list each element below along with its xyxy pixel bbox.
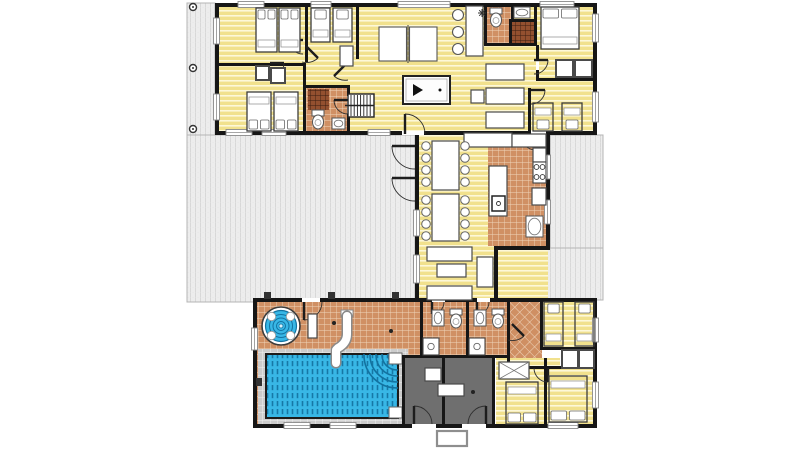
dining-chair (422, 166, 431, 175)
jacuzzi-seat (267, 331, 275, 339)
table-tennis-table (379, 25, 437, 63)
pillow (508, 413, 521, 422)
closet (562, 350, 578, 368)
sink-basin (434, 312, 442, 324)
billiard-table (403, 76, 450, 104)
shower-tray (423, 338, 439, 355)
wall (305, 3, 308, 62)
pillow (562, 9, 578, 18)
floor-plan-svg (0, 0, 800, 449)
bathroom-sink (432, 310, 444, 326)
bed-fold (335, 30, 350, 37)
bed-fold (535, 108, 551, 115)
bed-fold (258, 40, 275, 47)
wall (540, 302, 543, 350)
pillow (291, 10, 298, 19)
post-marker (392, 292, 399, 299)
island-sink (492, 196, 505, 211)
pillow (281, 10, 288, 19)
bed-fold (313, 30, 328, 37)
pillow (566, 120, 578, 129)
pillow (276, 120, 285, 129)
bed-fold (281, 40, 298, 47)
hallway-floor (510, 300, 542, 366)
sink-basin (476, 312, 484, 324)
toilet (450, 309, 462, 328)
closet (575, 60, 592, 77)
table-half (410, 27, 438, 61)
wardrobe (340, 46, 353, 66)
closet (562, 350, 578, 368)
ceiling-fan-symbol (478, 9, 486, 17)
pool-bench (308, 314, 317, 338)
pillow (249, 120, 258, 129)
kitchen-counter (533, 148, 546, 162)
pillow (288, 120, 297, 129)
wall (402, 355, 510, 358)
bed-fold (276, 97, 296, 104)
dining-table (432, 194, 459, 241)
bar-stool (453, 44, 464, 55)
jacuzzi-seat (286, 312, 294, 320)
sofa (486, 64, 524, 80)
sofa (427, 247, 472, 261)
bed-single (311, 8, 330, 42)
dining-chair (461, 208, 470, 217)
wardrobe (340, 46, 353, 66)
wall (534, 3, 537, 45)
island-sink (492, 196, 505, 211)
pillow (548, 304, 559, 313)
kitchen-counter (533, 148, 546, 162)
bar-stool (453, 10, 464, 21)
shelf (425, 368, 441, 381)
sofa (486, 112, 524, 128)
wall (509, 19, 512, 45)
coffee-table (437, 264, 466, 277)
sofa (427, 247, 472, 261)
staircase (345, 94, 374, 117)
dining-chair (461, 142, 470, 151)
closet (556, 60, 573, 77)
bathroom-sink (514, 7, 530, 18)
dining-chair (461, 196, 470, 205)
toilet-bowl (491, 13, 502, 27)
dining-chair (461, 220, 470, 229)
pillow (337, 10, 348, 19)
hall-bathroom-shower (308, 89, 329, 110)
kitchen-counter (512, 134, 546, 147)
closet (271, 68, 285, 83)
bed-fold (546, 334, 561, 341)
wall-opening (302, 298, 320, 302)
wall (509, 19, 534, 22)
dining-chair (461, 178, 470, 187)
billiard-rail (403, 76, 450, 104)
shelf (438, 384, 464, 396)
dining-chair (422, 196, 431, 205)
table-half (379, 27, 407, 61)
dining-chair (422, 232, 431, 241)
pillow (524, 413, 537, 422)
dining-chair (461, 232, 470, 241)
closet (579, 350, 594, 368)
dining-chair (422, 220, 431, 229)
sideboard (464, 133, 512, 147)
fridge (532, 188, 546, 205)
bed-fold (249, 97, 269, 104)
armchair (477, 257, 493, 287)
jacuzzi-seat (267, 312, 275, 320)
deck-post-center (192, 6, 194, 8)
shelf (425, 368, 441, 381)
bar-stool (453, 27, 464, 38)
wardrobe (499, 362, 529, 379)
post-marker (256, 378, 262, 386)
wall (507, 302, 510, 370)
dining-chair (422, 208, 431, 217)
post-marker (264, 292, 271, 299)
deck-post-center (192, 128, 194, 130)
deck (187, 135, 415, 302)
bed-single (274, 92, 298, 131)
jacuzzi-center (279, 324, 283, 328)
dining-chair (422, 142, 431, 151)
sofa (486, 112, 524, 128)
closet (575, 60, 592, 77)
closet (256, 66, 269, 80)
side-table (471, 90, 484, 103)
wall (536, 45, 539, 60)
bathroom-sink (474, 310, 486, 326)
sofa (486, 88, 524, 104)
pillow (261, 120, 270, 129)
closet (556, 60, 573, 77)
floor-drain (332, 321, 336, 325)
pillow (537, 120, 549, 129)
floor-drain (389, 329, 393, 333)
wall-opening (462, 424, 486, 428)
deck-post-center (192, 67, 194, 69)
pool-step (389, 407, 402, 418)
bed-fold (551, 381, 585, 388)
shower-tray (469, 338, 485, 355)
deck (550, 135, 603, 248)
wall (536, 78, 596, 81)
bed-fold (543, 37, 577, 44)
toilet-bowl (451, 314, 462, 328)
toilet (492, 309, 504, 328)
pillow (551, 411, 567, 420)
floor-plan-image (0, 0, 800, 449)
bathroom-sink (332, 118, 345, 129)
bar-stool (453, 44, 464, 55)
sink-basin (528, 218, 541, 235)
wall (356, 3, 359, 59)
wall-opening (412, 424, 436, 428)
dining-chair (422, 178, 431, 187)
sideboard (464, 133, 512, 147)
bed-double (279, 8, 300, 52)
closet (579, 350, 594, 368)
pillow (315, 10, 326, 19)
wall (402, 355, 405, 426)
sink-basin (334, 120, 343, 127)
wall-opening (477, 298, 490, 302)
sofa (486, 88, 524, 104)
toilet (490, 8, 502, 27)
dining-table (432, 141, 459, 190)
floor-drain (471, 390, 475, 394)
bed-single (247, 92, 271, 131)
sofa (427, 286, 472, 300)
wall-opening (536, 60, 539, 70)
dining-chair (461, 154, 470, 163)
kitchen-sink (526, 216, 543, 237)
stove (533, 162, 546, 183)
post-marker (328, 292, 335, 299)
toilet-bowl (313, 115, 324, 129)
entrance-mat (437, 431, 467, 446)
dining-table (432, 194, 459, 241)
wall (494, 246, 498, 302)
toilet-bowl (493, 314, 504, 328)
pillow (579, 304, 590, 313)
sink-basin (516, 9, 528, 16)
shower-tray (423, 338, 439, 355)
bar-stool (453, 10, 464, 21)
wall (492, 358, 495, 426)
wall (494, 246, 550, 250)
bed-fold (508, 387, 536, 394)
side-table (471, 90, 484, 103)
bed-single (333, 8, 352, 42)
bar-stool (453, 27, 464, 38)
kitchen-counter (512, 134, 546, 147)
closet (271, 68, 285, 83)
cue-ball-dot (439, 89, 442, 92)
pillow (543, 9, 559, 18)
sofa (427, 286, 472, 300)
pillow (570, 411, 586, 420)
shelf (438, 384, 464, 396)
wall (484, 3, 487, 46)
bed-fold (564, 108, 580, 115)
dining-table (432, 141, 459, 190)
top-shower-floor (512, 21, 534, 45)
wall (528, 88, 531, 133)
pillow (268, 10, 275, 19)
closet (256, 66, 269, 80)
dining-chair (461, 166, 470, 175)
shower-tray (469, 338, 485, 355)
armchair (477, 257, 493, 287)
wall (303, 63, 306, 133)
bed-double (256, 8, 277, 52)
dining-chair (422, 154, 431, 163)
bed-fold (577, 334, 592, 341)
wall (303, 85, 350, 88)
entrance-mat (437, 431, 467, 446)
jacuzzi-seat (286, 331, 294, 339)
sofa (486, 64, 524, 80)
pillow (258, 10, 265, 19)
bed-double (541, 7, 579, 49)
toilet (312, 110, 324, 129)
pool-bench (308, 314, 317, 338)
coffee-table (437, 264, 466, 277)
pool-step (389, 353, 402, 364)
wall (253, 298, 257, 428)
fridge (532, 188, 546, 205)
